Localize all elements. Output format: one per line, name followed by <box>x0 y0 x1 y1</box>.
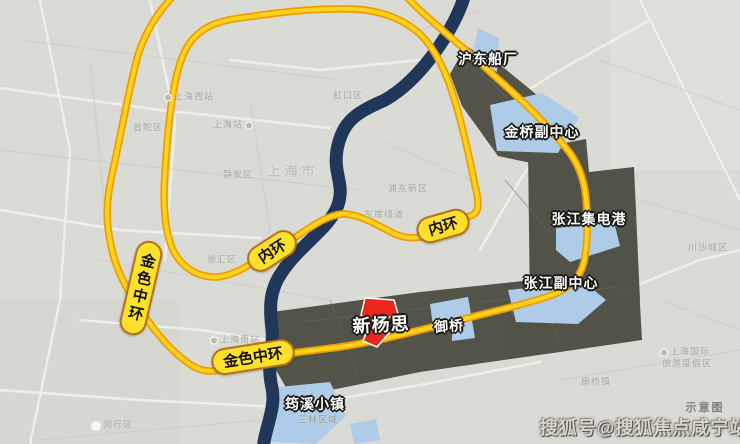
watermark: 搜狐号@搜狐焦点咸宁站 <box>540 414 740 440</box>
map-canvas <box>0 0 740 444</box>
zone-label-hudong-shipyard: 沪东船厂 <box>458 49 518 69</box>
map-label-shanghai-west-station: 上海西站 <box>164 90 214 103</box>
map-label-jingan: 静安区 <box>223 168 253 181</box>
poi-icon <box>91 421 101 431</box>
map-label-xuhui: 徐汇区 <box>207 253 237 266</box>
poi-icon <box>660 348 668 356</box>
map-label-intl-resort-2: 旅游度假区 <box>662 357 712 370</box>
map-label-kangqiao: 康桥镇 <box>581 375 611 388</box>
map: 普陀区 上海西站 上海站 上海市 静安区 虹口区 徐汇区 上海南站 闵行区 东岸… <box>0 0 740 444</box>
station-icon <box>164 93 172 101</box>
zone-label-yuqiao: 御桥 <box>433 315 464 337</box>
map-label-minhang: 闵行区 <box>103 418 133 431</box>
station-icon <box>245 121 253 129</box>
zone-label-zhangjiang-ic-port: 张江集电港 <box>552 209 627 229</box>
zone-label-jinqiao-subcenter: 金桥副中心 <box>505 122 580 142</box>
map-label-putuo: 普陀区 <box>133 121 163 134</box>
station-icon <box>210 336 218 344</box>
zone-label-yunxi-town: 筠溪小镇 <box>285 394 345 414</box>
map-label-sanlin: 三林区域 <box>298 413 338 426</box>
map-label-pudong: 浦东新区 <box>388 182 428 195</box>
map-label-chuansha: 川沙城区 <box>688 241 728 254</box>
map-label-shanghai-city: 上海市 <box>267 161 318 180</box>
zone-label-zhangjiang-subcenter: 张江副中心 <box>524 273 599 293</box>
map-label-hongkou: 虹口区 <box>333 89 363 102</box>
map-label-dongan-greenway: 东岸绿道 <box>364 208 404 221</box>
map-label-shanghai-station: 上海站 <box>213 118 253 131</box>
schematic-note: 示意图 <box>686 399 725 415</box>
map-light-patch <box>610 0 740 170</box>
project-label-xinyangsi: 新杨思 <box>352 310 410 339</box>
